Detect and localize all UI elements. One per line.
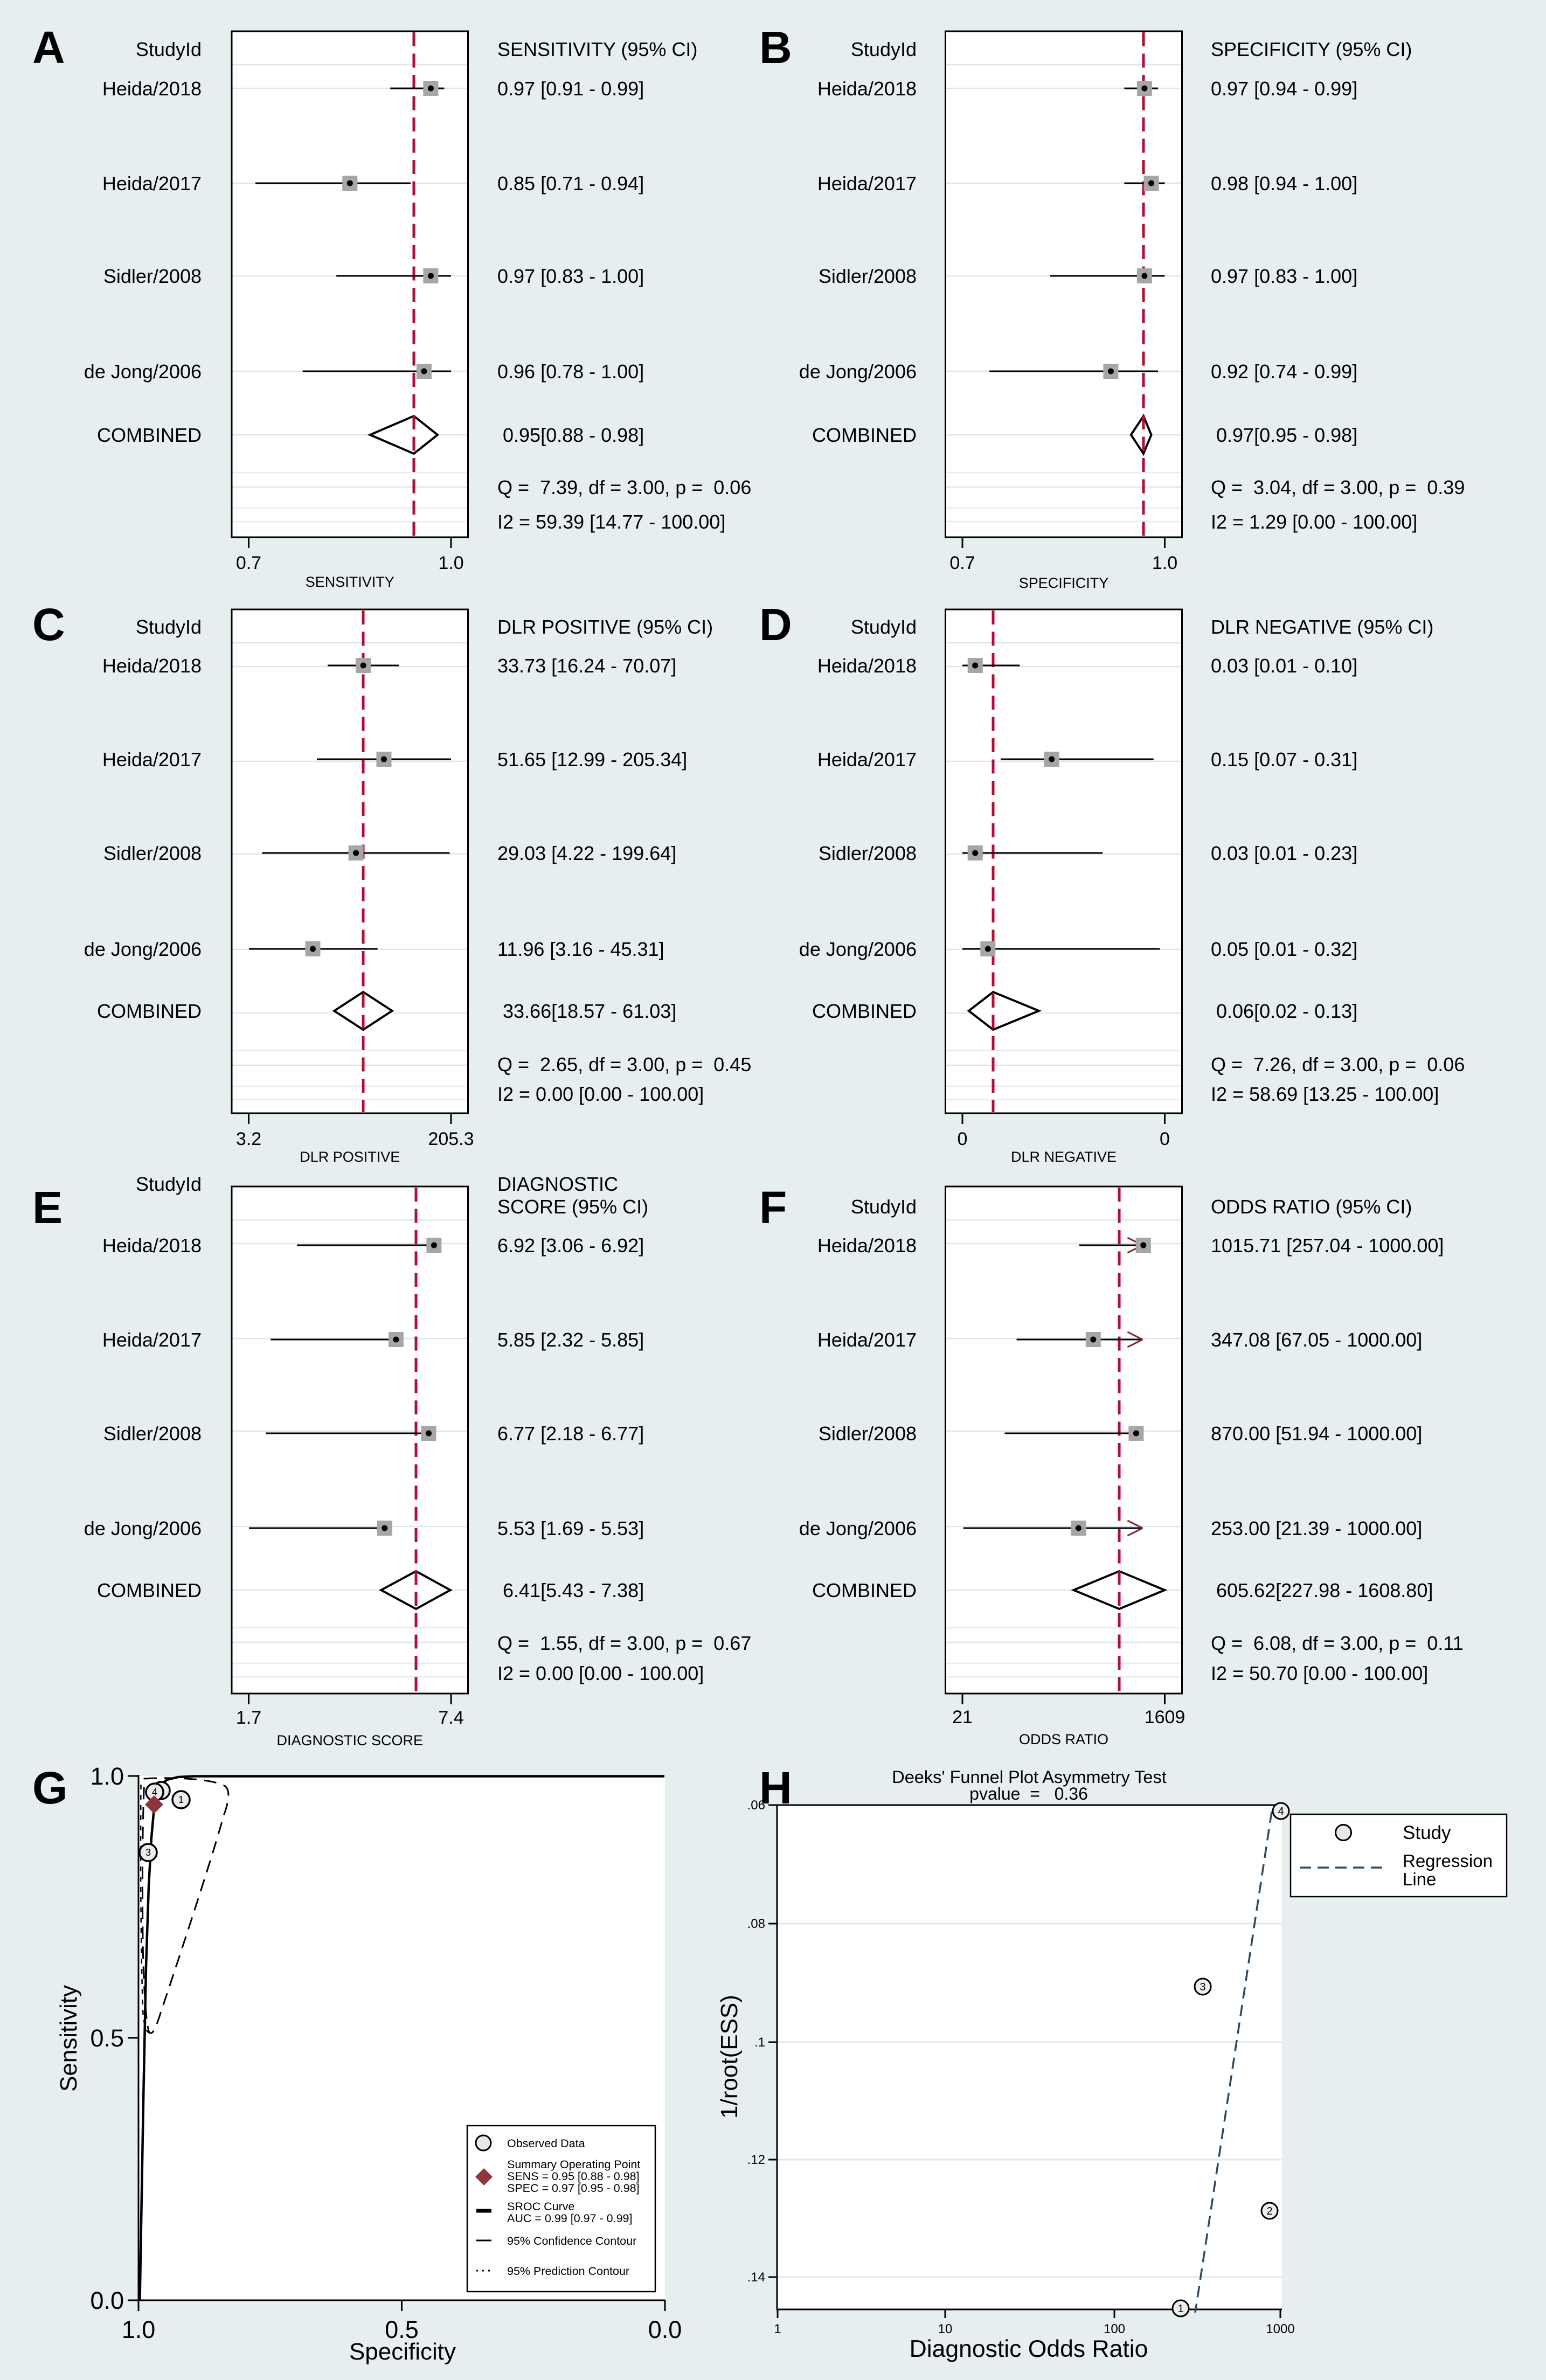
svg-text:10: 10 [938,2322,953,2336]
svg-text:0.97[0.95 - 0.98]: 0.97[0.95 - 0.98] [1216,424,1357,446]
svg-text:de Jong/2006: de Jong/2006 [799,360,917,383]
svg-text:A: A [32,22,65,73]
svg-text:I2 = 0.00 [0.00 - 100.00]: I2 = 0.00 [0.00 - 100.00] [497,1662,704,1684]
svg-text:2: 2 [1266,2205,1272,2217]
svg-text:1: 1 [178,1794,184,1805]
svg-text:Q = 7.39, df = 3.00, p = 0.0: Q = 7.39, df = 3.00, p = 0.06 [497,476,751,498]
svg-text:D: D [759,599,792,650]
svg-text:Sidler/2008: Sidler/2008 [103,265,202,287]
svg-text:DLR NEGATIVE (95% CI): DLR NEGATIVE (95% CI) [1211,616,1433,638]
svg-text:de Jong/2006: de Jong/2006 [84,1517,202,1539]
svg-text:0.7: 0.7 [236,553,261,573]
svg-text:I2 = 1.29 [0.00 - 100.00]: I2 = 1.29 [0.00 - 100.00] [1211,511,1417,533]
svg-text:205.3: 205.3 [428,1129,474,1149]
svg-text:870.00 [51.94 - 1000.00]: 870.00 [51.94 - 1000.00] [1211,1423,1422,1445]
svg-text:5.85 [2.32 - 5.85]: 5.85 [2.32 - 5.85] [497,1329,644,1351]
svg-text:COMBINED: COMBINED [97,1579,202,1601]
svg-text:1.0: 1.0 [1152,553,1177,573]
svg-text:SENSITIVITY: SENSITIVITY [306,574,394,590]
svg-text:Heida/2018: Heida/2018 [817,78,917,100]
svg-text:0.7: 0.7 [949,553,975,573]
svg-text:0.96 [0.78 - 1.00]: 0.96 [0.78 - 1.00] [497,360,644,383]
svg-text:StudyId: StudyId [136,616,202,638]
svg-text:1: 1 [1177,2303,1183,2315]
svg-text:1609: 1609 [1145,1707,1186,1727]
svg-text:95% Prediction Contour: 95% Prediction Contour [507,2265,629,2278]
svg-text:6.92 [3.06 - 6.92]: 6.92 [3.06 - 6.92] [497,1234,644,1257]
svg-text:0.97 [0.94 - 0.99]: 0.97 [0.94 - 0.99] [1211,78,1357,100]
svg-text:1.0: 1.0 [438,553,463,573]
svg-text:StudyId: StudyId [851,1196,917,1218]
svg-text:0.03 [0.01 - 0.23]: 0.03 [0.01 - 0.23] [1211,842,1357,864]
svg-text:F: F [759,1182,787,1233]
svg-text:StudyId: StudyId [851,38,917,60]
svg-text:0.92 [0.74 - 0.99]: 0.92 [0.74 - 0.99] [1211,360,1357,383]
svg-text:0.0: 0.0 [90,2287,124,2314]
svg-text:0: 0 [958,1129,968,1149]
svg-text:Sensitivity: Sensitivity [56,1985,82,2092]
svg-text:605.62[227.98 - 1608.80]: 605.62[227.98 - 1608.80] [1216,1579,1433,1601]
svg-text:0.97 [0.83 - 1.00]: 0.97 [0.83 - 1.00] [497,265,644,287]
svg-text:253.00 [21.39 - 1000.00]: 253.00 [21.39 - 1000.00] [1211,1517,1422,1539]
svg-text:5.53 [1.69 - 5.53]: 5.53 [1.69 - 5.53] [497,1517,644,1539]
svg-text:SCORE (95% CI): SCORE (95% CI) [497,1196,648,1218]
svg-text:0: 0 [1160,1129,1170,1149]
svg-text:DLR NEGATIVE: DLR NEGATIVE [1011,1149,1117,1165]
svg-text:4: 4 [1278,1806,1284,1817]
svg-text:3.2: 3.2 [236,1129,261,1149]
svg-text:0.03 [0.01 - 0.10]: 0.03 [0.01 - 0.10] [1211,655,1357,677]
svg-text:SPECIFICITY: SPECIFICITY [1019,575,1109,591]
svg-text:Regression: Regression [1403,1851,1493,1871]
svg-text:E: E [32,1182,63,1233]
svg-text:I2 = 0.00 [0.00 - 100.00]: I2 = 0.00 [0.00 - 100.00] [497,1083,704,1105]
svg-text:DIAGNOSTIC SCORE: DIAGNOSTIC SCORE [276,1732,423,1748]
svg-text:6.77 [2.18 - 6.77]: 6.77 [2.18 - 6.77] [497,1423,644,1445]
svg-text:0.97 [0.83 - 1.00]: 0.97 [0.83 - 1.00] [1211,265,1357,287]
svg-text:Heida/2017: Heida/2017 [102,748,202,771]
svg-text:I2 = 58.69 [13.25 - 100.00]: I2 = 58.69 [13.25 - 100.00] [1211,1083,1439,1105]
svg-text:Heida/2017: Heida/2017 [102,1329,202,1351]
svg-text:21: 21 [952,1707,973,1727]
svg-text:B: B [759,22,792,73]
svg-text:Study: Study [1403,1822,1451,1843]
svg-text:COMBINED: COMBINED [812,1000,917,1022]
svg-text:COMBINED: COMBINED [812,1579,917,1601]
svg-text:Sidler/2008: Sidler/2008 [103,842,202,864]
svg-text:COMBINED: COMBINED [97,1000,202,1022]
svg-text:1000: 1000 [1266,2322,1294,2336]
svg-text:0.98 [0.94 - 1.00]: 0.98 [0.94 - 1.00] [1211,172,1357,195]
svg-text:StudyId: StudyId [136,1173,202,1195]
svg-text:7.4: 7.4 [438,1708,463,1728]
svg-text:Q = 3.04, df = 3.00, p = 0.3: Q = 3.04, df = 3.00, p = 0.39 [1211,476,1465,498]
svg-text:6.41[5.43 - 7.38]: 6.41[5.43 - 7.38] [503,1579,644,1601]
svg-text:3: 3 [1200,1981,1205,1993]
svg-text:Q = 2.65, df = 3.00, p = 0.4: Q = 2.65, df = 3.00, p = 0.45 [497,1053,751,1075]
svg-text:DIAGNOSTIC: DIAGNOSTIC [497,1173,618,1195]
svg-text:AUC = 0.99 [0.97 - 0.99]: AUC = 0.99 [0.97 - 0.99] [507,2212,632,2225]
svg-text:Diagnostic Odds Ratio: Diagnostic Odds Ratio [910,2336,1148,2362]
svg-text:Sidler/2008: Sidler/2008 [103,1423,202,1445]
svg-text:Sidler/2008: Sidler/2008 [819,265,917,287]
svg-text:SPEC = 0.97 [0.95 - 0.98]: SPEC = 0.97 [0.95 - 0.98] [507,2182,640,2195]
svg-text:Heida/2017: Heida/2017 [102,172,202,195]
svg-text:0.05 [0.01 - 0.32]: 0.05 [0.01 - 0.32] [1211,938,1357,960]
svg-text:DLR POSITIVE: DLR POSITIVE [300,1149,400,1165]
svg-text:29.03 [4.22 - 199.64]: 29.03 [4.22 - 199.64] [497,842,676,864]
svg-text:de Jong/2006: de Jong/2006 [799,938,917,960]
svg-text:Sidler/2008: Sidler/2008 [819,842,917,864]
svg-text:de Jong/2006: de Jong/2006 [84,938,202,960]
svg-text:11.96 [3.16 - 45.31]: 11.96 [3.16 - 45.31] [497,938,664,960]
svg-text:Specificity: Specificity [349,2339,456,2365]
svg-text:347.08 [67.05 - 1000.00]: 347.08 [67.05 - 1000.00] [1211,1329,1422,1351]
svg-text:C: C [32,599,65,650]
svg-text:ODDS RATIO: ODDS RATIO [1019,1731,1108,1747]
svg-text:0.0: 0.0 [648,2316,682,2343]
svg-text:.14: .14 [747,2270,765,2285]
svg-text:Heida/2018: Heida/2018 [102,78,202,100]
svg-text:Q = 1.55, df = 3.00, p = 0.6: Q = 1.55, df = 3.00, p = 0.67 [497,1632,751,1654]
svg-text:0.95[0.88 - 0.98]: 0.95[0.88 - 0.98] [503,424,644,446]
svg-text:1: 1 [774,2322,781,2336]
svg-text:100: 100 [1104,2322,1125,2336]
svg-text:Q = 7.26, df = 3.00, p = 0.0: Q = 7.26, df = 3.00, p = 0.06 [1211,1053,1465,1075]
svg-text:Heida/2017: Heida/2017 [817,748,917,771]
svg-text:Heida/2017: Heida/2017 [817,1329,917,1351]
svg-text:ODDS RATIO (95% CI): ODDS RATIO (95% CI) [1211,1196,1412,1218]
svg-text:33.73 [16.24 - 70.07]: 33.73 [16.24 - 70.07] [497,655,676,677]
svg-text:G: G [32,1763,67,1813]
svg-text:.08: .08 [747,1917,765,1931]
svg-text:DLR POSITIVE (95% CI): DLR POSITIVE (95% CI) [497,616,713,638]
svg-text:StudyId: StudyId [136,38,202,60]
svg-text:SPECIFICITY (95% CI): SPECIFICITY (95% CI) [1211,38,1412,60]
svg-text:COMBINED: COMBINED [812,424,917,446]
svg-text:Summary Operating Point: Summary Operating Point [507,2158,640,2171]
svg-text:StudyId: StudyId [851,616,917,638]
svg-text:1.7: 1.7 [236,1708,261,1728]
svg-text:COMBINED: COMBINED [97,424,202,446]
svg-text:de Jong/2006: de Jong/2006 [84,360,202,383]
svg-text:I2 = 50.70 [0.00 - 100.00]: I2 = 50.70 [0.00 - 100.00] [1211,1662,1428,1684]
svg-text:0.5: 0.5 [90,2024,124,2052]
svg-text:3: 3 [145,1847,151,1858]
svg-text:Heida/2017: Heida/2017 [817,172,917,195]
svg-text:Heida/2018: Heida/2018 [102,1234,202,1257]
svg-text:.12: .12 [747,2153,765,2167]
svg-text:Heida/2018: Heida/2018 [817,655,917,677]
svg-text:0.85 [0.71 - 0.94]: 0.85 [0.71 - 0.94] [497,172,644,195]
svg-text:1.0: 1.0 [90,1763,124,1790]
svg-text:1015.71 [257.04 - 1000.00]: 1015.71 [257.04 - 1000.00] [1211,1234,1444,1257]
svg-text:0.97 [0.91 - 0.99]: 0.97 [0.91 - 0.99] [497,78,644,100]
svg-text:51.65 [12.99 - 205.34]: 51.65 [12.99 - 205.34] [497,748,687,771]
svg-text:de Jong/2006: de Jong/2006 [799,1517,917,1539]
svg-text:I2 = 59.39 [14.77 - 100.00]: I2 = 59.39 [14.77 - 100.00] [497,511,725,533]
svg-text:SENS = 0.95 [0.88 - 0.98]: SENS = 0.95 [0.88 - 0.98] [507,2170,640,2183]
svg-text:Heida/2018: Heida/2018 [102,655,202,677]
svg-text:Line: Line [1403,1869,1436,1889]
svg-text:95% Confidence Contour: 95% Confidence Contour [507,2235,636,2247]
svg-text:.1: .1 [754,2035,765,2050]
svg-text:0.06[0.02 - 0.13]: 0.06[0.02 - 0.13] [1216,1000,1357,1022]
svg-text:Observed Data: Observed Data [507,2137,585,2150]
svg-text:SENSITIVITY (95% CI): SENSITIVITY (95% CI) [497,38,697,60]
svg-text:33.66[18.57 - 61.03]: 33.66[18.57 - 61.03] [503,1000,676,1022]
svg-text:SROC Curve: SROC Curve [507,2200,574,2213]
svg-text:0.15 [0.07 - 0.31]: 0.15 [0.07 - 0.31] [1211,748,1357,771]
svg-text:Sidler/2008: Sidler/2008 [819,1423,917,1445]
svg-text:.06: .06 [747,1798,765,1813]
svg-text:Q = 6.08, df = 3.00, p = 0.1: Q = 6.08, df = 3.00, p = 0.11 [1211,1632,1464,1654]
svg-text:1/root(ESS): 1/root(ESS) [716,1995,743,2119]
svg-text:1.0: 1.0 [122,2316,156,2343]
svg-text:pvalue = 0.36: pvalue = 0.36 [969,1784,1088,1803]
svg-text:Heida/2018: Heida/2018 [817,1234,917,1257]
